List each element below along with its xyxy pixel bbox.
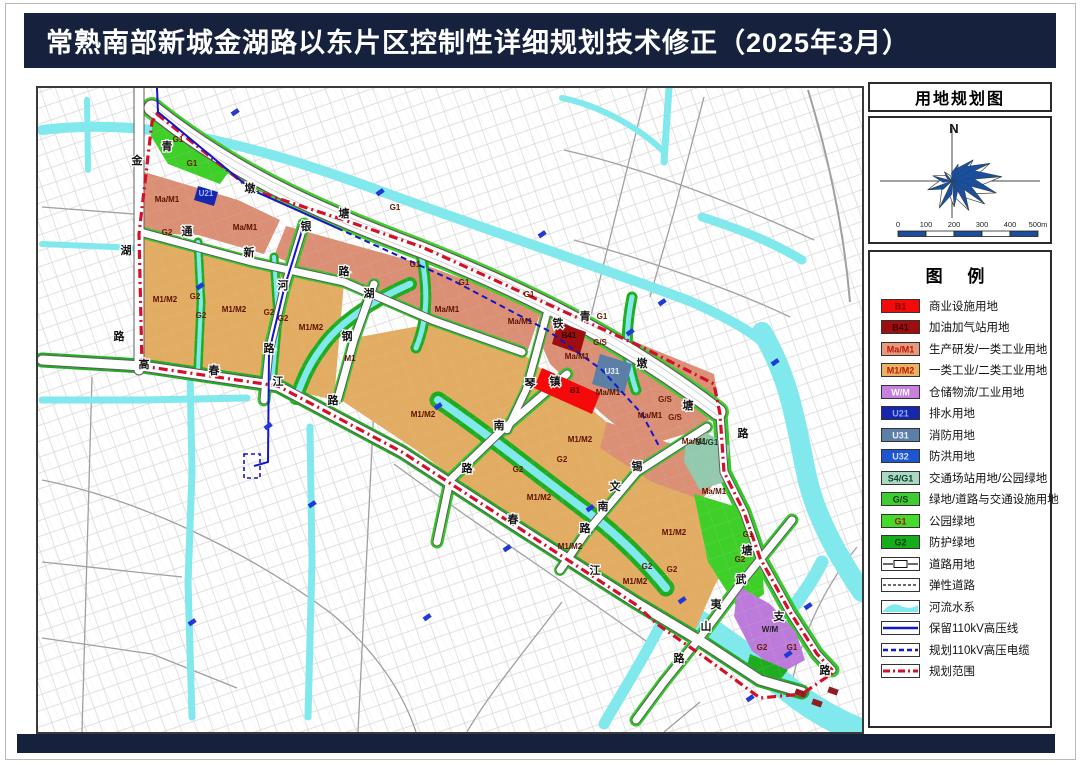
zone-label: G1 bbox=[410, 260, 421, 269]
legend-item: W/M仓储物流/工业用地 bbox=[870, 381, 1050, 403]
svg-text:G2: G2 bbox=[894, 538, 906, 548]
legend-swatch-Ma/M1: Ma/M1 bbox=[881, 342, 920, 356]
legend-item: U32防洪用地 bbox=[870, 446, 1050, 468]
zone-label: G1 bbox=[187, 159, 198, 168]
zone-label: B41 bbox=[562, 331, 577, 340]
legend-title: 图 例 bbox=[870, 262, 1050, 287]
legend-swatch-hv-solid bbox=[881, 621, 920, 635]
svg-text:S4/G1: S4/G1 bbox=[888, 473, 914, 483]
zone-label: G1 bbox=[524, 290, 535, 299]
road-name-char: 江 bbox=[590, 563, 601, 577]
zone-label: G/S bbox=[658, 395, 672, 404]
legend-label: 保留110kV高压线 bbox=[929, 620, 1018, 636]
road-name-char: 新 bbox=[244, 245, 255, 259]
legend-swatch-boundary bbox=[881, 664, 920, 678]
legend-swatch-dash bbox=[881, 578, 920, 592]
legend-label: 规划110kV高压电缆 bbox=[929, 642, 1030, 658]
legend-swatch-M1/M2: M1/M2 bbox=[881, 363, 920, 377]
zone-label: Ma/M1 bbox=[702, 487, 727, 496]
road-name-char: 路 bbox=[820, 663, 832, 677]
road-name-char: 锡 bbox=[632, 459, 643, 473]
road-name-char: 路 bbox=[339, 264, 351, 278]
road-name-char: 夷 bbox=[711, 597, 723, 611]
zone-label: B1 bbox=[570, 386, 581, 395]
zone-label: G2 bbox=[757, 643, 768, 652]
legend-item: S4/G1交通场站用地/公园绿地 bbox=[870, 467, 1050, 489]
svg-text:G/S: G/S bbox=[893, 495, 909, 505]
zone-label: Ma/M1 bbox=[638, 411, 663, 420]
svg-text:B1: B1 bbox=[895, 301, 907, 311]
legend-swatch-S4/G1: S4/G1 bbox=[881, 471, 920, 485]
road-name-char: 墩 bbox=[245, 181, 257, 195]
legend-label: 排水用地 bbox=[929, 405, 975, 421]
parcel-texture bbox=[38, 88, 862, 732]
zone-label: G2 bbox=[190, 292, 201, 301]
road-name-char: 山 bbox=[701, 619, 712, 633]
svg-text:W/M: W/M bbox=[891, 387, 910, 397]
legend-swatch-G1: G1 bbox=[881, 514, 920, 528]
zone-label: S4/G1 bbox=[696, 438, 719, 447]
zone-label: M1/M2 bbox=[153, 295, 178, 304]
legend-label: 绿地/道路与交通设施用地 bbox=[929, 491, 1059, 507]
compass-rose: N0100200300400500m bbox=[870, 118, 1050, 242]
svg-text:U31: U31 bbox=[892, 430, 909, 440]
legend-label: 商业设施用地 bbox=[929, 298, 998, 314]
legend-item: U21排水用地 bbox=[870, 403, 1050, 425]
zone-label: G2 bbox=[513, 465, 524, 474]
legend-swatch-hv-dash bbox=[881, 643, 920, 657]
road-name-char: 塘 bbox=[742, 543, 753, 557]
zone-label: Ma/M1 bbox=[435, 305, 460, 314]
zone-label: G2 bbox=[642, 562, 653, 571]
planning-map[interactable]: Ma/M1Ma/M1Ma/M1Ma/M1Ma/M1Ma/M1Ma/M1Ma/M1… bbox=[36, 86, 864, 734]
zone-label: G1 bbox=[597, 312, 608, 321]
legend-swatch-U21: U21 bbox=[881, 406, 920, 420]
road-name-char: 南 bbox=[598, 499, 609, 513]
legend-item: M1/M2一类工业/二类工业用地 bbox=[870, 360, 1050, 382]
legend-label: 仓储物流/工业用地 bbox=[929, 384, 1024, 400]
zone-label: G/S bbox=[668, 413, 682, 422]
road-name-char: 路 bbox=[674, 651, 686, 665]
zone-label: Ma/M1 bbox=[565, 352, 590, 361]
scale-tick: 400 bbox=[1004, 220, 1017, 229]
zone-label: M1/M2 bbox=[558, 542, 583, 551]
footer-bar bbox=[17, 734, 1055, 753]
legend-label: 公园绿地 bbox=[929, 513, 975, 529]
road-name-char: 青 bbox=[580, 309, 591, 323]
road-name-char: 江 bbox=[273, 374, 284, 388]
legend-item: 道路用地 bbox=[870, 553, 1050, 575]
zone-label: M1/M2 bbox=[662, 528, 687, 537]
legend-label: 防洪用地 bbox=[929, 448, 975, 464]
zone-label: G2 bbox=[162, 228, 173, 237]
legend-item: 保留110kV高压线 bbox=[870, 618, 1050, 640]
legend-swatch-water bbox=[881, 600, 920, 614]
zone-label: Ma/M1 bbox=[155, 195, 180, 204]
legend-rows: B1商业设施用地B41加油加气站用地Ma/M1生产研发/一类工业用地M1/M2一… bbox=[870, 295, 1050, 682]
road-name-char: 河 bbox=[278, 278, 289, 292]
zone-label: G1 bbox=[787, 643, 798, 652]
road-name-char: 路 bbox=[580, 521, 592, 535]
zone-label: U21 bbox=[199, 189, 214, 198]
road-name-char: 湖 bbox=[121, 243, 132, 257]
svg-text:U32: U32 bbox=[892, 452, 909, 462]
map-title-box: 用地规划图 bbox=[868, 82, 1052, 112]
legend-item: U31消防用地 bbox=[870, 424, 1050, 446]
legend-item: G2防护绿地 bbox=[870, 532, 1050, 554]
zone-label: G2 bbox=[667, 565, 678, 574]
legend-label: 交通场站用地/公园绿地 bbox=[929, 470, 1047, 486]
scale-tick: 0 bbox=[896, 220, 900, 229]
scale-tick: 300 bbox=[976, 220, 989, 229]
road-name-char: 南 bbox=[494, 418, 505, 432]
legend-label: 一类工业/二类工业用地 bbox=[929, 362, 1047, 378]
scale-tick: 100 bbox=[920, 220, 933, 229]
road-name-char: 镇 bbox=[550, 374, 561, 388]
legend-label: 道路用地 bbox=[929, 556, 975, 572]
page: 常熟南部新城金湖路以东片区控制性详细规划技术修正（2025年3月） bbox=[0, 0, 1080, 763]
scale-tick: 500m bbox=[1029, 220, 1048, 229]
legend-label: 河流水系 bbox=[929, 599, 975, 615]
zone-label: M1 bbox=[344, 354, 356, 363]
zone-label: G1 bbox=[743, 530, 754, 539]
legend-swatch-U32: U32 bbox=[881, 449, 920, 463]
legend-item: 河流水系 bbox=[870, 596, 1050, 618]
zone-label: G1 bbox=[459, 278, 470, 287]
compass-box: N0100200300400500m bbox=[868, 116, 1052, 244]
road-name-char: 通 bbox=[182, 225, 193, 238]
zone-label: G1 bbox=[173, 135, 184, 144]
legend-swatch-B1: B1 bbox=[881, 299, 920, 313]
svg-text:B41: B41 bbox=[892, 323, 909, 333]
legend-item: 弹性道路 bbox=[870, 575, 1050, 597]
svg-text:G1: G1 bbox=[894, 516, 906, 526]
road-name-char: 路 bbox=[738, 426, 750, 440]
scale-tick: 200 bbox=[948, 220, 961, 229]
legend-label: 消防用地 bbox=[929, 427, 975, 443]
zone-label: M1/M2 bbox=[222, 305, 247, 314]
svg-text:U21: U21 bbox=[892, 409, 909, 419]
legend-item: G1公园绿地 bbox=[870, 510, 1050, 532]
road-name-char: 钢 bbox=[342, 329, 353, 343]
road-name-char: 路 bbox=[462, 461, 474, 475]
legend-item: G/S绿地/道路与交通设施用地 bbox=[870, 489, 1050, 511]
road-name-char: 路 bbox=[114, 329, 126, 343]
road-name-char: 墩 bbox=[637, 356, 649, 370]
zone-label: G2 bbox=[278, 314, 289, 323]
road-name-char: 塘 bbox=[683, 398, 694, 412]
legend-item: 规划范围 bbox=[870, 661, 1050, 683]
legend-item: 规划110kV高压电缆 bbox=[870, 639, 1050, 661]
legend-swatch-road bbox=[881, 557, 920, 571]
legend-swatch-U31: U31 bbox=[881, 428, 920, 442]
road-name-char: 塘 bbox=[339, 206, 350, 220]
road-name-char: 青 bbox=[162, 139, 173, 153]
zone-label: M1/M2 bbox=[527, 493, 552, 502]
legend-swatch-W/M: W/M bbox=[881, 385, 920, 399]
legend-item: Ma/M1生产研发/一类工业用地 bbox=[870, 338, 1050, 360]
zone-label: W/M bbox=[762, 625, 779, 634]
road-name-char: 路 bbox=[264, 341, 276, 355]
road-name-char: 武 bbox=[736, 572, 747, 586]
map-canvas: Ma/M1Ma/M1Ma/M1Ma/M1Ma/M1Ma/M1Ma/M1Ma/M1… bbox=[38, 88, 862, 732]
legend-label: 防护绿地 bbox=[929, 534, 975, 550]
legend-item: B1商业设施用地 bbox=[870, 295, 1050, 317]
road-name-char: 湖 bbox=[364, 286, 375, 300]
zone-label: M1/M2 bbox=[299, 323, 324, 332]
zone-label: M1/M2 bbox=[411, 410, 436, 419]
road-name-char: 春 bbox=[209, 363, 221, 377]
road-name-char: 金 bbox=[131, 153, 144, 167]
legend-swatch-G/S: G/S bbox=[881, 492, 920, 506]
zone-label: M1/M2 bbox=[568, 435, 593, 444]
road-name-char: 路 bbox=[328, 393, 340, 407]
road-name-char: 银 bbox=[301, 219, 313, 233]
road-name-char: 铁 bbox=[553, 316, 564, 330]
north-label: N bbox=[949, 121, 958, 136]
title-bar: 常熟南部新城金湖路以东片区控制性详细规划技术修正（2025年3月） bbox=[24, 13, 1056, 68]
zone-label: U31 bbox=[605, 367, 620, 376]
svg-text:M1/M2: M1/M2 bbox=[887, 366, 915, 376]
svg-text:Ma/M1: Ma/M1 bbox=[887, 344, 915, 354]
legend-box: 图 例 B1商业设施用地B41加油加气站用地Ma/M1生产研发/一类工业用地M1… bbox=[868, 250, 1052, 728]
zone-label: G2 bbox=[557, 455, 568, 464]
legend-swatch-G2: G2 bbox=[881, 535, 920, 549]
legend-item: B41加油加气站用地 bbox=[870, 317, 1050, 339]
legend-label: 弹性道路 bbox=[929, 577, 975, 593]
zone-label: G1 bbox=[390, 203, 401, 212]
zone-label: G2 bbox=[196, 311, 207, 320]
page-title: 常熟南部新城金湖路以东片区控制性详细规划技术修正（2025年3月） bbox=[46, 21, 910, 60]
legend-label: 加油加气站用地 bbox=[929, 319, 1010, 335]
zone-label: Ma/M1 bbox=[508, 317, 533, 326]
road-name-char: 春 bbox=[508, 512, 520, 526]
zone-label: M1/M2 bbox=[623, 577, 648, 586]
zone-label: Ma/M1 bbox=[596, 388, 621, 397]
legend-swatch-B41: B41 bbox=[881, 320, 920, 334]
zone-label: Ma/M1 bbox=[233, 223, 258, 232]
map-title: 用地规划图 bbox=[915, 85, 1005, 109]
road-name-char: 支 bbox=[773, 609, 786, 623]
road-name-char: 文 bbox=[610, 479, 622, 493]
zone-label: G2 bbox=[264, 308, 275, 317]
road-name-char: 琴 bbox=[524, 377, 536, 390]
zone-label: G/S bbox=[593, 338, 607, 347]
legend-label: 生产研发/一类工业用地 bbox=[929, 341, 1047, 357]
legend-label: 规划范围 bbox=[929, 663, 975, 679]
road-name-char: 高 bbox=[139, 357, 150, 371]
